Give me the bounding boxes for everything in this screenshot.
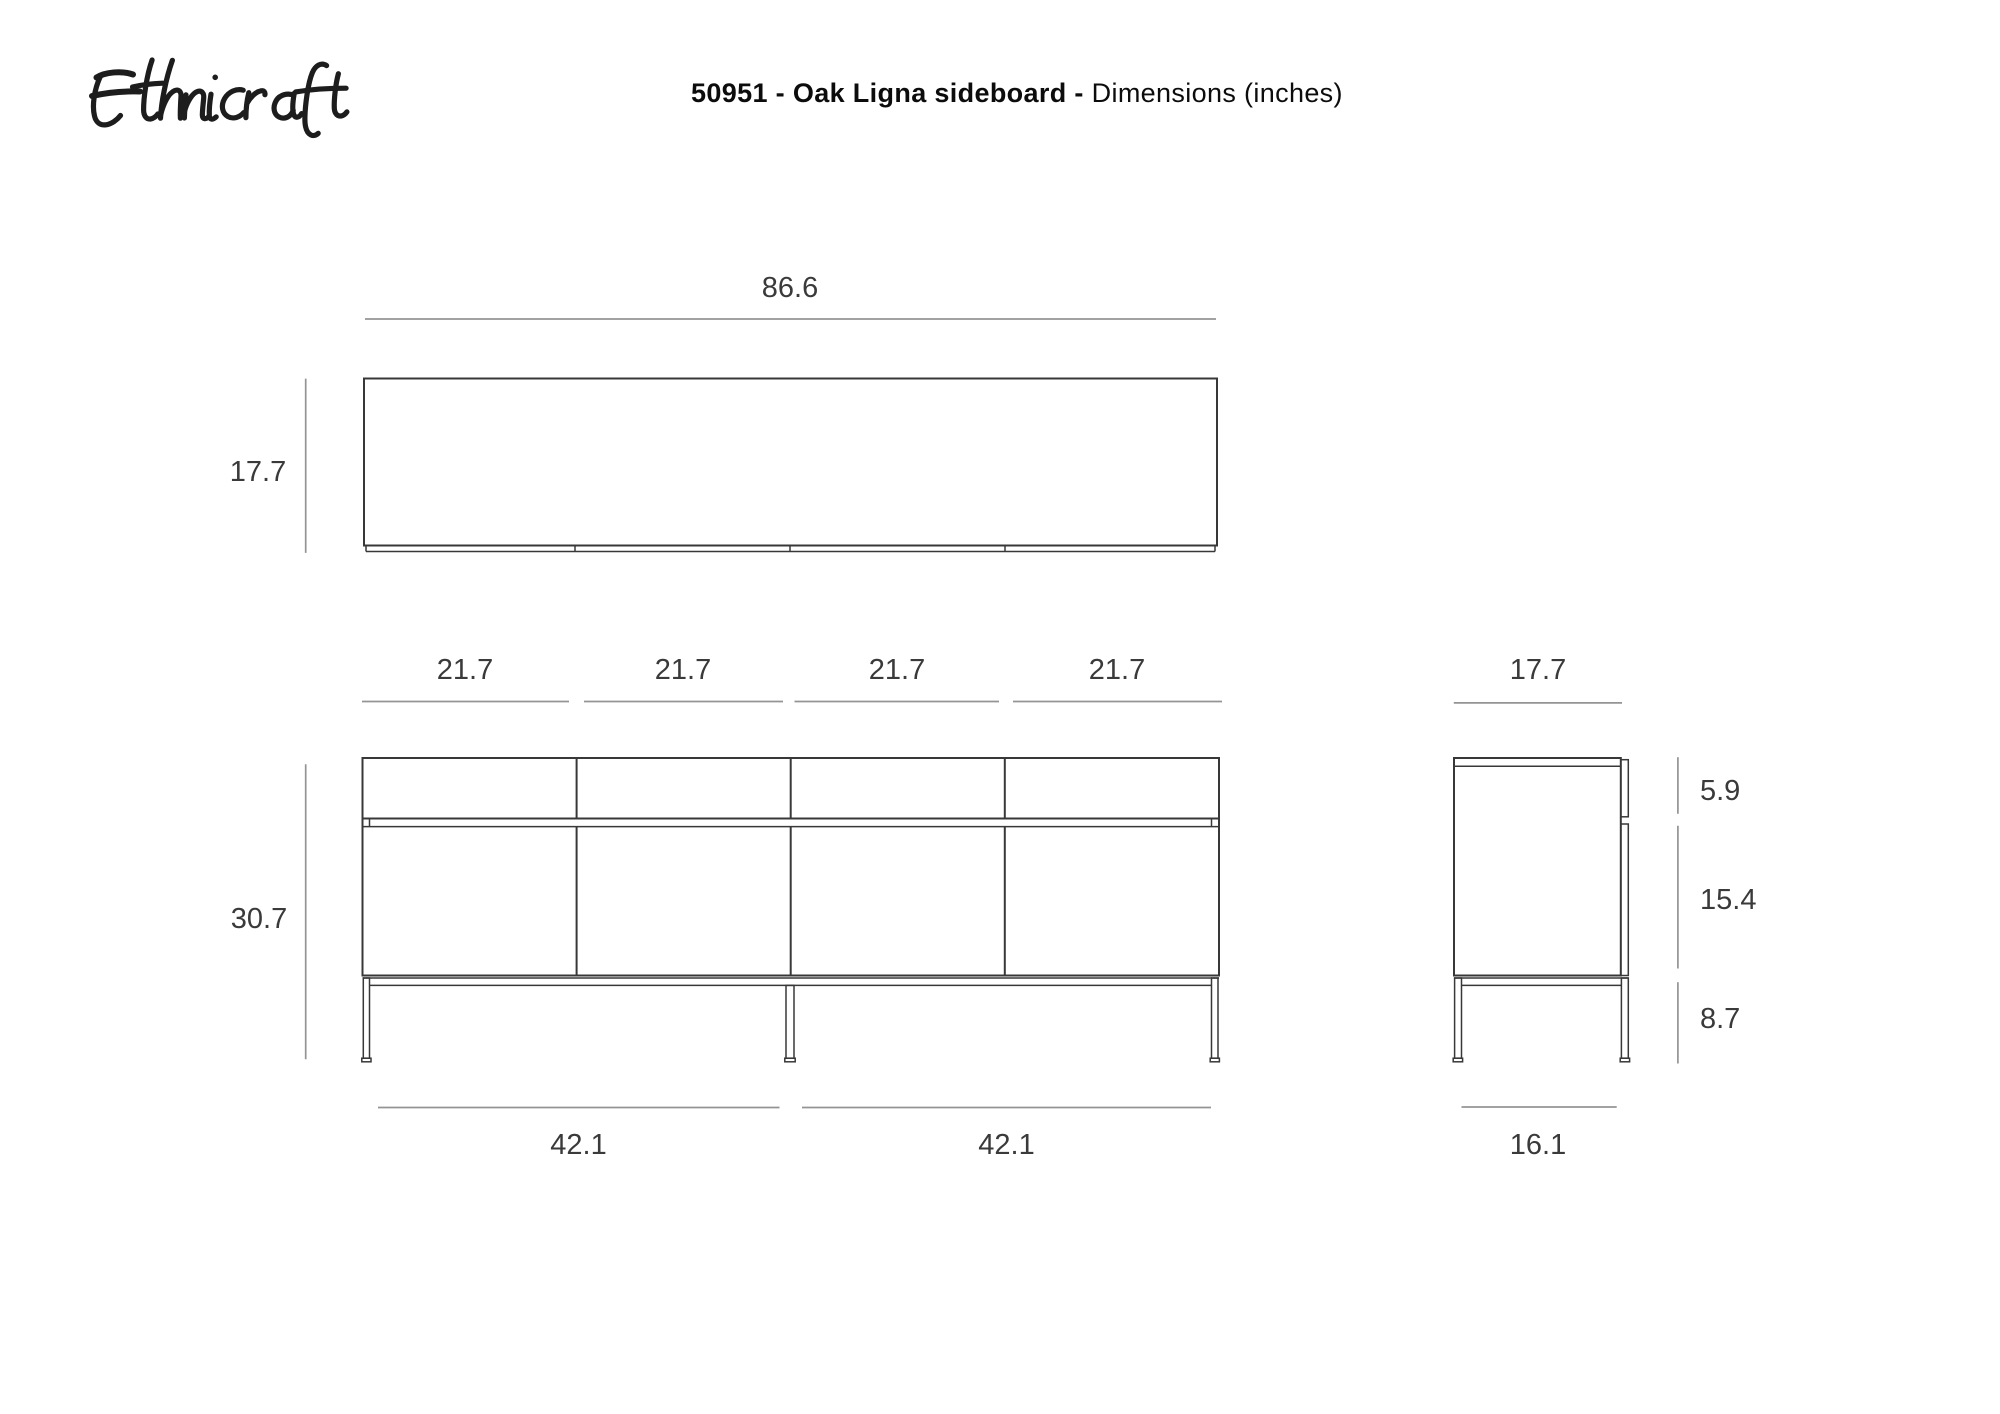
svg-text:8.7: 8.7 (1700, 1003, 1740, 1035)
svg-text:21.7: 21.7 (869, 654, 925, 686)
svg-text:30.7: 30.7 (231, 903, 287, 935)
svg-text:42.1: 42.1 (978, 1129, 1034, 1161)
svg-text:15.4: 15.4 (1700, 884, 1756, 916)
svg-text:17.7: 17.7 (1510, 654, 1566, 686)
svg-text:17.7: 17.7 (230, 456, 286, 488)
svg-text:42.1: 42.1 (550, 1129, 606, 1161)
svg-text:16.1: 16.1 (1510, 1129, 1566, 1161)
svg-text:21.7: 21.7 (437, 654, 493, 686)
svg-text:21.7: 21.7 (655, 654, 711, 686)
svg-text:86.6: 86.6 (762, 272, 818, 304)
svg-text:5.9: 5.9 (1700, 775, 1740, 807)
svg-text:21.7: 21.7 (1089, 654, 1145, 686)
svg-text:50951 - Oak Ligna sideboard -: 50951 - Oak Ligna sideboard - Dimensions… (691, 78, 1343, 108)
